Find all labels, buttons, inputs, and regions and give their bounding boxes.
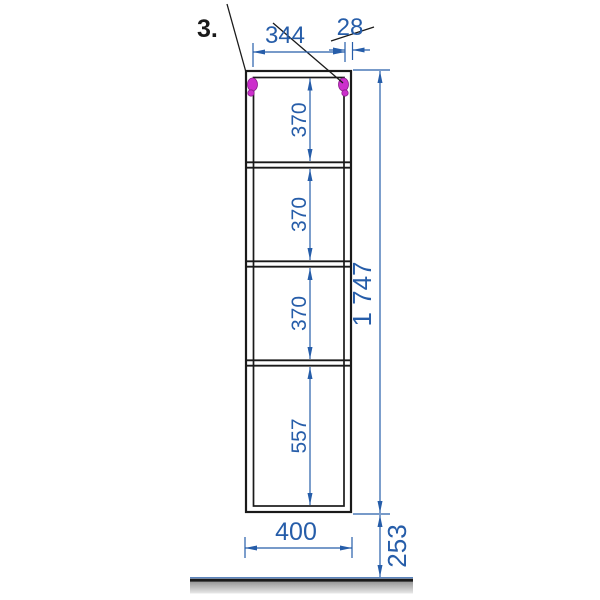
dimension-text-inner-width: 344	[265, 22, 305, 49]
dimension-text-shelf-gap-2: 370	[288, 197, 311, 232]
dimension-text-outer-width: 400	[275, 518, 317, 546]
dimension-text-bottom-gap: 557	[288, 418, 311, 453]
callout-leader-line-left	[227, 4, 246, 71]
dimension-text-shelf-gap-1: 370	[288, 102, 311, 137]
hinge-dot-icon	[342, 90, 348, 96]
technical-drawing-canvas: 3. 344 28 370 370 370 557 1 747 253 400	[0, 0, 600, 600]
hinge-dot-icon	[248, 78, 258, 91]
callout-item-number: 3.	[197, 15, 218, 43]
dimension-text-floor-offset: 253	[382, 524, 412, 567]
dimension-text-total-height: 1 747	[347, 261, 377, 326]
shelf-unit-dimension-drawing: 3. 344 28 370 370 370 557 1 747 253 400	[0, 0, 600, 600]
hinge-marker-left	[248, 78, 258, 96]
hinge-dot-icon	[248, 90, 254, 96]
dimension-text-shelf-gap-3: 370	[288, 296, 311, 331]
floor-hatch-band	[190, 582, 413, 594]
dimension-text-panel-thickness: 28	[337, 14, 364, 41]
